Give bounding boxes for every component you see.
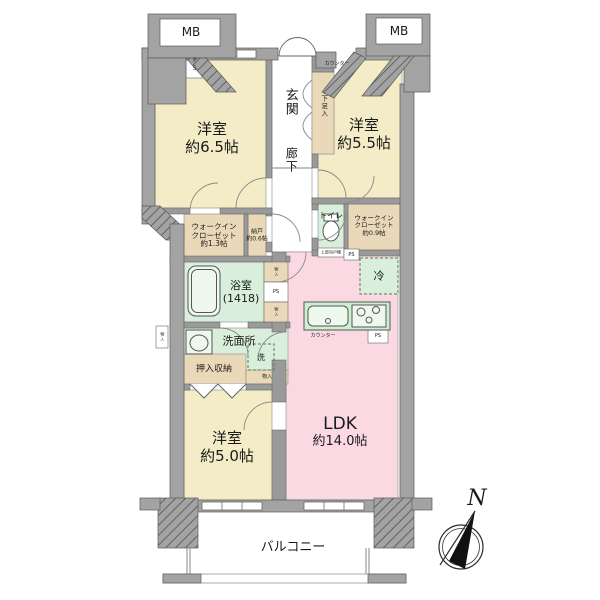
- compass-needle: [449, 511, 475, 569]
- oshiire-label: 押入収納: [196, 365, 232, 376]
- window-ldk: [304, 502, 364, 510]
- toilet-bowl: [323, 221, 339, 241]
- ps-top-left-label: PS: [191, 57, 198, 73]
- monoire-south-label: 物入: [262, 374, 272, 380]
- bedroom-65-label: 洋室 約6.5帖: [185, 120, 239, 156]
- washroom-label: 洗面所: [223, 334, 256, 347]
- ldk-label: LDK 約14.0帖: [313, 414, 368, 450]
- mb-right-label: MB: [390, 24, 409, 38]
- right-wall: [400, 84, 414, 506]
- ps-toilet-label: PS: [348, 252, 354, 258]
- ps-kitchen-label: PS: [375, 333, 381, 339]
- bathtub: [188, 266, 220, 316]
- wic-13-label: ウォークイン クローゼット 約1.3帖: [192, 223, 237, 249]
- bathroom-label: 浴室 (1418): [223, 279, 260, 305]
- bedroom-55-label: 洋室 約5.5帖: [337, 116, 391, 152]
- stove: [352, 305, 386, 327]
- washing-machine-label: 洗: [257, 353, 265, 363]
- floor-plan-drawing: [0, 0, 600, 600]
- ps-mid-label: PS: [273, 289, 279, 295]
- kitchen-counter-label: カウンター: [310, 333, 335, 339]
- toilet-shelf-label: 上部吊戸棚: [321, 250, 341, 255]
- entrance-counter-label: カウンター: [324, 61, 349, 67]
- entrance-door-arc: [279, 38, 316, 57]
- toilet-label: トイレ: [319, 211, 343, 221]
- wic-09-label: ウォークイン クローゼット 約0.9帖: [355, 215, 394, 237]
- shoe-cabinet-label: 下足入: [319, 95, 326, 118]
- refrigerator-label: 冷: [374, 269, 385, 282]
- compass: [439, 511, 483, 569]
- storeroom-label: 納戸 約0.6帖: [246, 229, 268, 242]
- balcony-label: バルコニー: [261, 540, 326, 556]
- balcony-corner-right: [374, 498, 414, 548]
- bedroom-50-label: 洋室 約5.0帖: [200, 429, 254, 465]
- entrance-label: 玄関: [282, 88, 298, 116]
- compass-north-label: N: [467, 486, 486, 512]
- mb-left-label: MB: [182, 25, 201, 39]
- window-bedroom50: [202, 502, 262, 510]
- hallway-label: 廊下: [284, 147, 298, 173]
- niche-label: 物入: [160, 332, 165, 342]
- left-wall-lower: [170, 224, 184, 506]
- balcony-corner-left: [158, 498, 198, 548]
- monoire-upper-label: 物入: [274, 267, 279, 277]
- floor-plan: MB MB PS カウンター 玄関 下足入 廊下 洋室 約6.5帖 洋室 約5.…: [0, 0, 600, 600]
- monoire-lower-label: 物入: [274, 307, 279, 317]
